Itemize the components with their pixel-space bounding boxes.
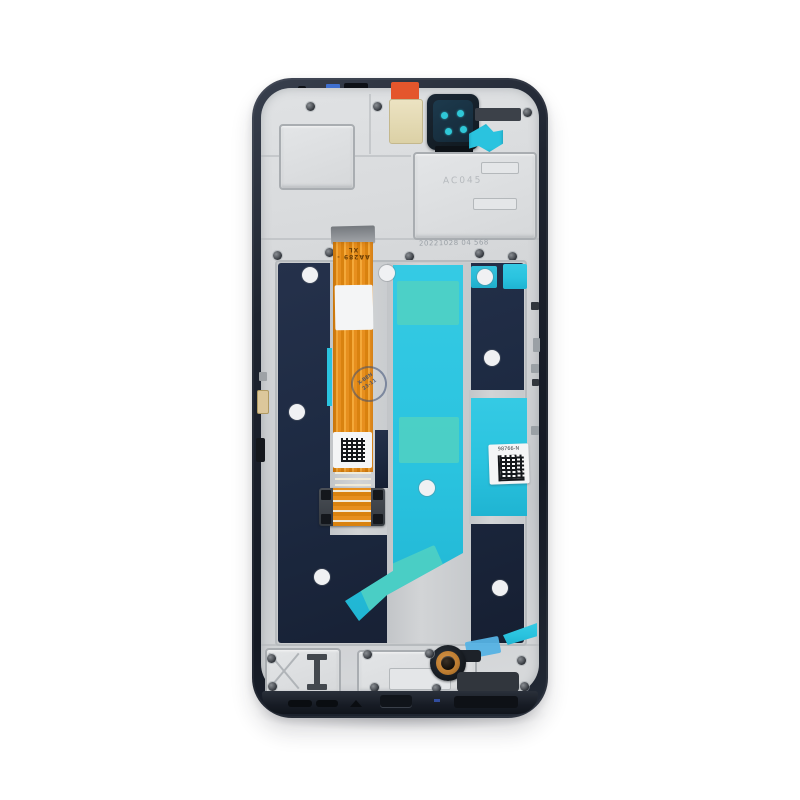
plate-tab [481, 162, 519, 174]
screw [425, 649, 434, 658]
display-assembly-frame: AC045 20221028 04 568 [252, 78, 548, 718]
datamatrix-code [498, 454, 525, 481]
speaker-slot [288, 700, 312, 707]
serial-label-code: 98766-N [488, 445, 528, 452]
alignment-hole [289, 404, 305, 420]
adhesive-patch [356, 545, 448, 611]
plate-marking: AC045 [443, 176, 483, 187]
top-left-shield-plate [279, 124, 355, 190]
side-tab [532, 379, 539, 386]
side-tab [533, 338, 540, 352]
side-clip [259, 372, 267, 381]
adhesive-patch [397, 281, 459, 325]
usb-recess [380, 695, 412, 708]
alignment-hole [477, 269, 493, 285]
adhesive-patch [399, 417, 459, 463]
camera-aperture-dot [460, 126, 467, 133]
camera-window [433, 100, 473, 142]
side-tab [531, 364, 539, 373]
adhesive-piece-right-top [503, 264, 527, 289]
camera-aperture-dot [457, 110, 464, 117]
speaker-slot [316, 700, 338, 707]
side-tab [531, 302, 539, 310]
top-dark-bar [475, 108, 521, 121]
solder-line [335, 478, 371, 480]
screw [517, 656, 526, 665]
screw [306, 102, 315, 111]
solder-line [335, 484, 371, 486]
alignment-hole [492, 580, 508, 596]
product-photo: AC045 20221028 04 568 [0, 0, 800, 800]
flex-connector [319, 488, 385, 526]
connector-clip [373, 490, 383, 500]
screw [475, 249, 484, 258]
side-tab [531, 426, 539, 435]
screw [268, 682, 277, 691]
motor-ring-center [441, 656, 455, 670]
connector-clip [321, 490, 331, 500]
bottom-plastic-band [262, 691, 538, 714]
main-flex-cable: AA289 -XL X-BEN 23-11 [329, 226, 377, 526]
alignment-hole [302, 267, 318, 283]
screw [273, 251, 282, 260]
plate-tab [473, 198, 517, 210]
bottom-dark-insert [457, 672, 519, 692]
alignment-hole [484, 350, 500, 366]
connector-clip [321, 514, 331, 524]
flex-blank-label [335, 285, 374, 331]
connector-clip [373, 514, 383, 524]
antenna-plate: AC045 [413, 152, 537, 240]
flex-marking: AA289 -XL [335, 246, 371, 260]
band-notch [350, 700, 362, 707]
i-beam-mark [307, 654, 327, 690]
metal-seam [369, 94, 371, 154]
camera-aperture-dot [445, 128, 452, 135]
serial-label: 98766-N [488, 443, 529, 484]
top-cream-module [389, 99, 423, 144]
bottom-left-plate [265, 648, 341, 696]
screw [523, 108, 532, 117]
top-orange-flex-tab [391, 82, 419, 100]
screw [363, 650, 372, 659]
alignment-hole [379, 265, 395, 281]
alignment-hole [314, 569, 330, 585]
band-dark-recess [454, 696, 518, 708]
screw [267, 654, 276, 663]
screw [373, 102, 382, 111]
screw [520, 682, 529, 691]
metal-midframe: AC045 20221028 04 568 [261, 88, 539, 694]
solder-line [335, 472, 371, 474]
side-dark-insert [256, 438, 265, 462]
side-contact-pad [257, 390, 269, 414]
display-back-panel: 98766-N [275, 260, 527, 646]
alignment-hole [419, 480, 435, 496]
flex-qr-label [333, 432, 372, 468]
date-stamp: 20221028 04 568 [419, 238, 489, 247]
camera-aperture-dot [441, 112, 448, 119]
band-blue-glint [434, 699, 440, 702]
connector-ribbon [333, 488, 371, 526]
qr-code [341, 438, 365, 462]
